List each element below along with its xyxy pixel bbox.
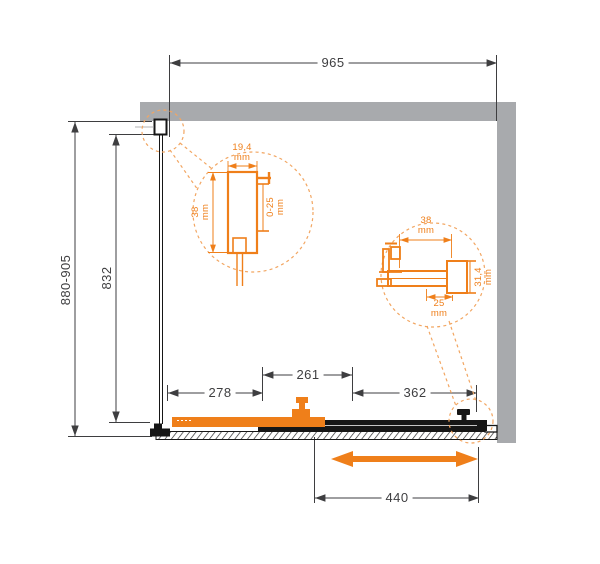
- detail-roller-height-label: 31,4 mm: [474, 267, 494, 286]
- detail-wall-profile-width-unit: mm: [234, 153, 250, 163]
- detail-roller-bottom-unit: mm: [431, 309, 447, 319]
- dim-depth-range-label: 880-905: [59, 255, 73, 306]
- left-glass-panel: [160, 135, 163, 424]
- detail-wall-profile-width-label: 19,4 mm: [232, 143, 251, 163]
- technical-drawing-canvas: 965 880-905 832 278 261 362 440 19,4 mm …: [0, 0, 600, 564]
- detail-roller-width-unit: mm: [418, 226, 434, 236]
- wall-top: [140, 102, 516, 121]
- wall-right: [497, 121, 516, 443]
- drawing-linework: [0, 0, 600, 564]
- dim-door-travel-label: 440: [382, 491, 413, 505]
- slide-direction-arrow-icon: [331, 451, 478, 467]
- detail-wall-profile-drawing: [208, 161, 271, 286]
- detail-roller-width-label: 38 mm: [418, 216, 434, 236]
- detail-wall-profile-depth-label: 38 mm: [191, 204, 211, 220]
- detail-roller-bottom-label: 25 mm: [431, 299, 447, 319]
- dim-glass-depth-label: 832: [100, 267, 114, 290]
- detail-roller-drawing: [377, 234, 476, 301]
- detail-wall-profile-adjust-unit: mm: [276, 199, 286, 215]
- dim-segment-right-label: 362: [400, 386, 431, 400]
- roller-carriage-knob: [292, 397, 310, 417]
- detail-wall-profile-adjust-label: 0-25 mm: [266, 197, 286, 217]
- detail-wall-profile-depth-unit: mm: [201, 204, 211, 220]
- detail-roller-height-unit: mm: [484, 269, 494, 285]
- dim-width-label: 965: [318, 56, 349, 70]
- dim-segment-left-label: 278: [205, 386, 236, 400]
- corner-bracket-bottom-left: [150, 424, 170, 437]
- door-knob: [457, 409, 470, 421]
- dim-segment-middle-label: 261: [293, 368, 324, 382]
- bottom-track: [156, 432, 497, 440]
- fixed-panel-highlight: [172, 417, 325, 427]
